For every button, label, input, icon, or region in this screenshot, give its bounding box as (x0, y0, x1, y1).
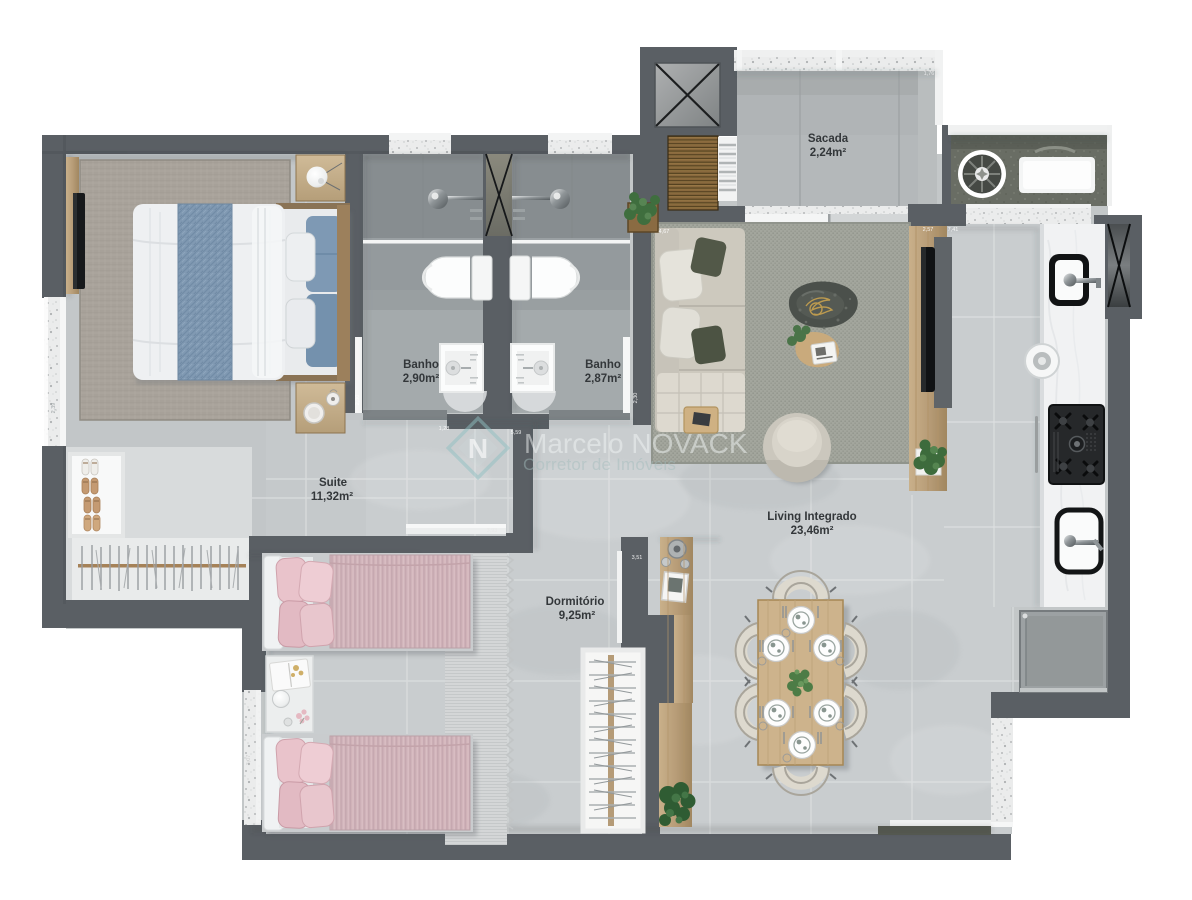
svg-text:Dormitório: Dormitório (546, 596, 605, 608)
svg-text:1,76: 1,76 (924, 71, 935, 77)
svg-text:2,57: 2,57 (923, 227, 934, 233)
svg-text:2,39: 2,39 (51, 403, 57, 414)
svg-text:2,30: 2,30 (633, 393, 639, 404)
svg-text:7,41: 7,41 (948, 227, 959, 233)
svg-text:2,30: 2,30 (355, 395, 361, 406)
svg-text:11,32m²: 11,32m² (311, 491, 353, 503)
svg-text:9,25m²: 9,25m² (559, 610, 596, 622)
svg-text:2,90m²: 2,90m² (403, 373, 440, 385)
svg-text:Banho: Banho (585, 359, 621, 371)
svg-text:1,28: 1,28 (439, 426, 450, 432)
svg-text:23,46m²: 23,46m² (791, 525, 834, 537)
svg-text:2,87m²: 2,87m² (585, 373, 622, 385)
svg-text:Suite: Suite (319, 477, 347, 489)
svg-text:2,24m²: 2,24m² (810, 147, 847, 159)
svg-text:Sacada: Sacada (808, 133, 849, 145)
svg-text:Corretor de Imóveis: Corretor de Imóveis (523, 455, 676, 474)
svg-text:Banho: Banho (403, 359, 439, 371)
svg-text:5,59: 5,59 (511, 430, 522, 436)
svg-text:N: N (468, 433, 488, 464)
svg-text:3,07: 3,07 (246, 755, 252, 766)
svg-text:Living Integrado: Living Integrado (767, 511, 856, 523)
svg-text:3,93: 3,93 (487, 528, 498, 534)
svg-text:3,51: 3,51 (632, 555, 643, 561)
svg-text:4,67: 4,67 (659, 229, 670, 235)
